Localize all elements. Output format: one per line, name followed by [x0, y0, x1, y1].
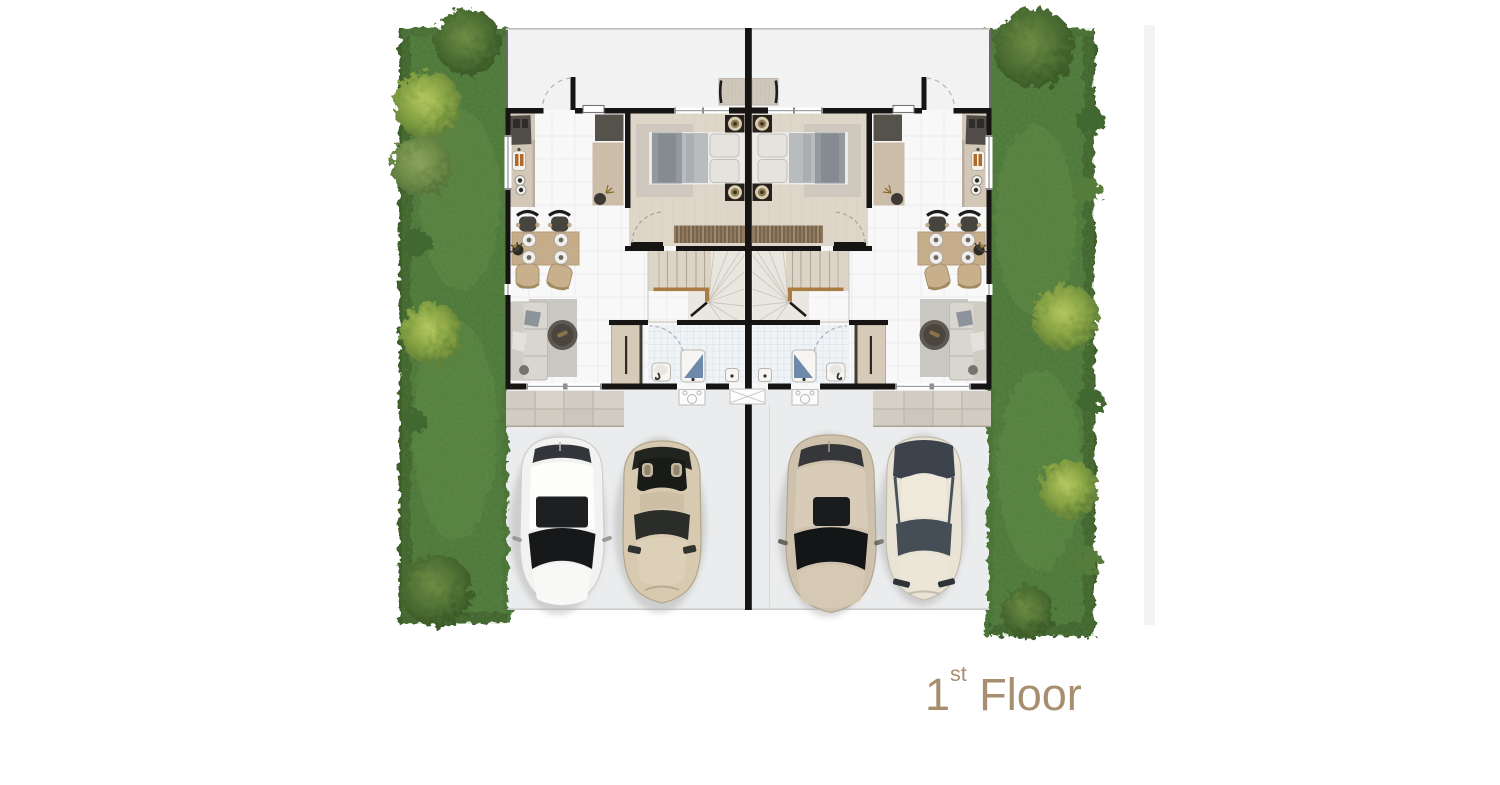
- svg-text:1st Floor: 1st Floor: [925, 662, 1082, 720]
